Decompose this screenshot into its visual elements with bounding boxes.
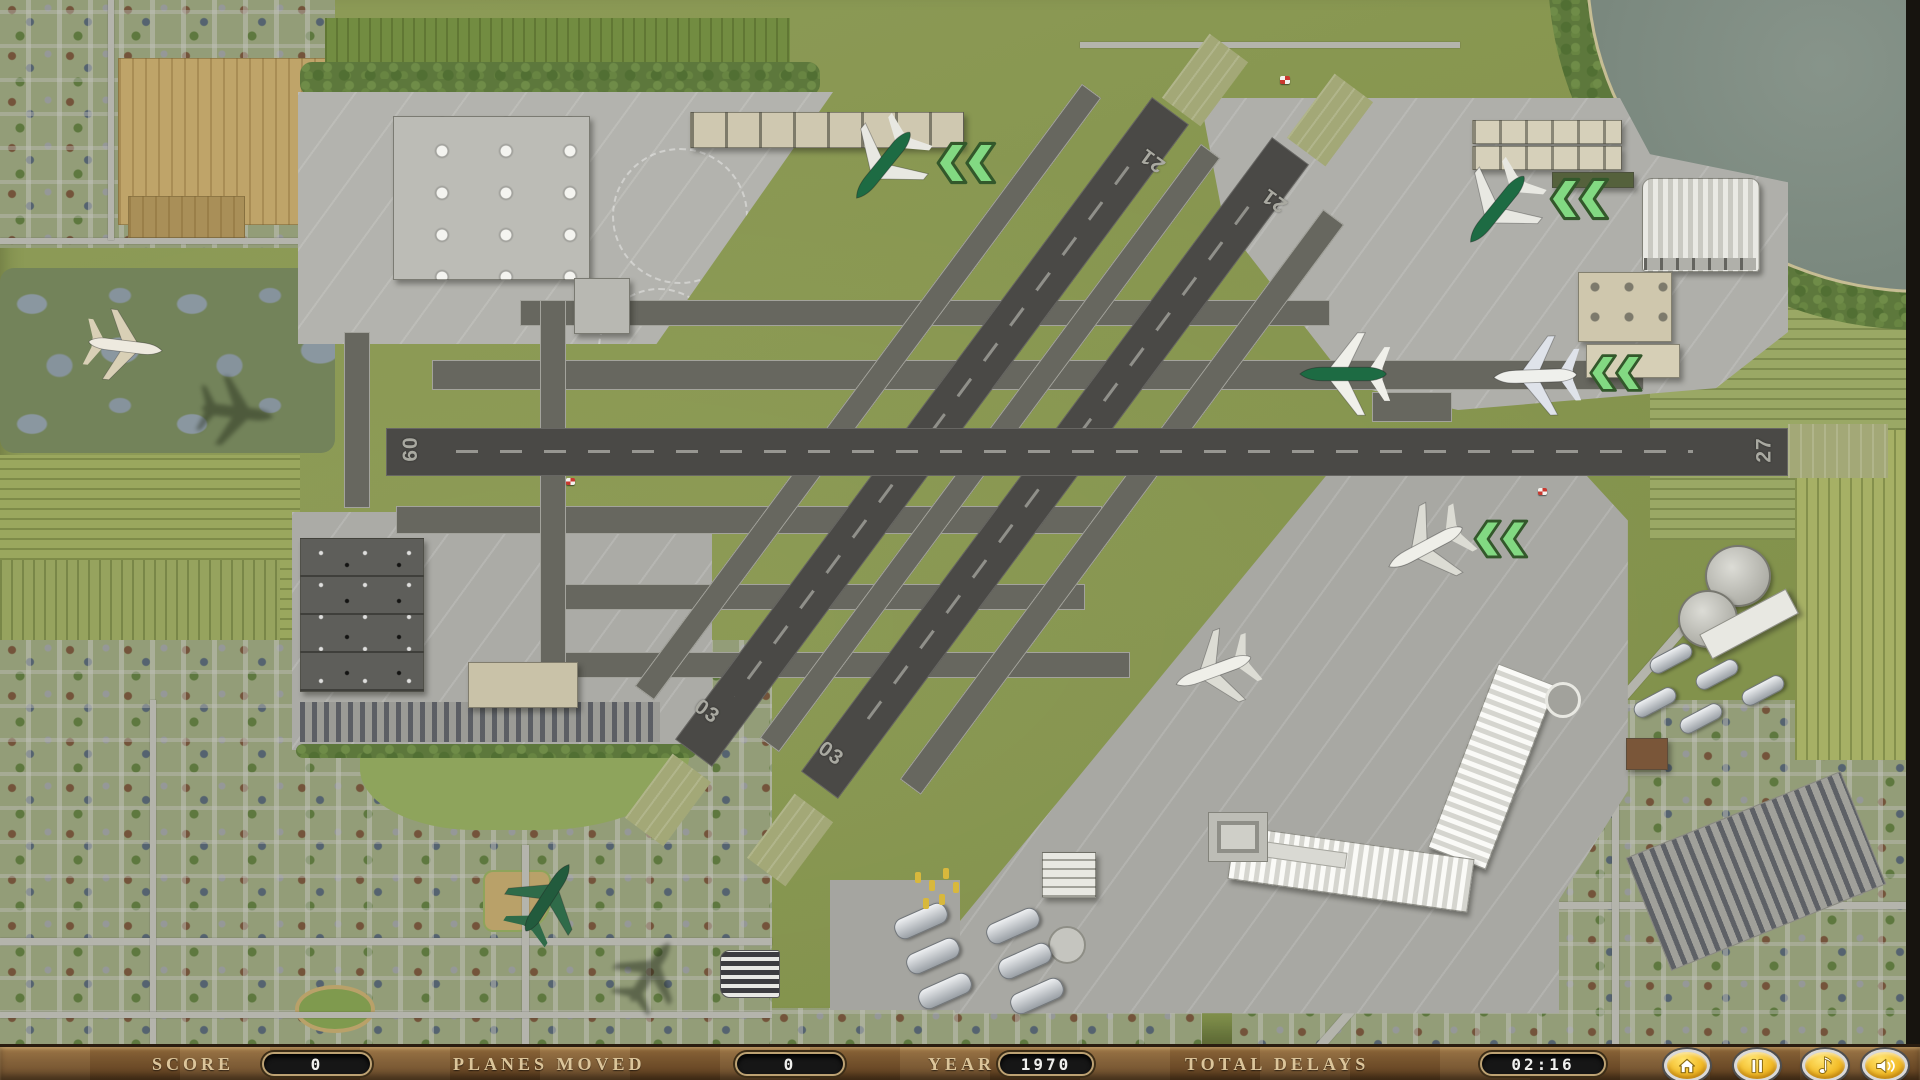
chevron-indicator [1472,518,1540,560]
pause-button[interactable] [1734,1049,1780,1080]
planes-moved-value: 0 [784,1055,797,1074]
house-icon [1672,1055,1702,1077]
runway-centerline [456,450,1693,453]
tree-band-north [300,62,820,96]
runway-number: 09 [397,437,421,462]
year-label: YEAR [928,1054,995,1075]
chevron-indicator [935,140,1009,186]
year-display: 1970 [998,1052,1094,1076]
runway-09-27 [386,428,1788,476]
taxiway-connector [344,332,370,508]
cargo-strip-building [1042,852,1096,898]
barracks-warehouse [1693,656,1742,693]
chevron-indicator [1588,352,1654,394]
airborne-plane-shadow [190,367,279,456]
cargo-warehouse [393,116,590,280]
helipad [1545,682,1581,718]
year-value: 1970 [1021,1055,1072,1074]
music-button[interactable] [1802,1049,1848,1080]
taxiway-connector [540,300,566,680]
parking-circle-marking [612,148,748,284]
hud-bar: SCORE 0 PLANES MOVED 0 YEAR 1970 TOTAL D… [0,1044,1920,1080]
road [150,700,156,1044]
round-pad [1048,926,1086,964]
music-note-icon [1810,1055,1840,1077]
planes-moved-display: 0 [735,1052,845,1076]
fire-truck [1538,488,1547,495]
hangar-doors [1644,258,1756,270]
airport-map: 21 03 21 03 09 27 [0,0,1920,1044]
road [0,238,330,244]
road [1080,42,1460,48]
office-building [468,662,578,708]
road [108,0,114,240]
plane-flying-over-marsh[interactable] [77,300,168,391]
fire-truck [1280,76,1290,84]
speaker-icon [1870,1055,1900,1077]
parking-lot [300,702,660,742]
runway-number: 27 [1753,437,1777,462]
score-value: 0 [311,1055,324,1074]
total-delays-value: 02:16 [1511,1055,1574,1074]
total-delays-label: TOTAL DELAYS [1185,1054,1369,1075]
town-south-mid [772,1008,1202,1044]
planes-moved-label: PLANES MOVED [453,1054,646,1075]
terminal-tower-block [1208,812,1268,862]
stadium-oval [295,985,375,1033]
fuel-barrels [915,872,921,883]
farm-field [128,196,245,238]
tree-row [296,744,696,758]
industrial-warehouse [300,538,424,692]
bus-garage [720,950,780,998]
fire-truck [566,478,575,485]
sound-button[interactable] [1862,1049,1908,1080]
marsh-west [0,268,335,453]
pause-icon [1742,1055,1772,1077]
score-display: 0 [262,1052,372,1076]
blast-pad-east [1788,424,1888,478]
chevron-indicator [1548,176,1622,222]
admin-building [1578,272,1672,342]
score-label: SCORE [152,1054,234,1075]
home-button[interactable] [1664,1049,1710,1080]
brick-building [1626,738,1668,770]
plane-taxiing-center[interactable] [1298,326,1394,422]
game-screen: 21 03 21 03 09 27 [0,0,1920,1080]
plane-east-taxiway[interactable] [1490,328,1585,423]
crop-field-east [1795,430,1920,760]
service-building [574,278,630,334]
total-delays-display: 02:16 [1480,1052,1606,1076]
terminal-northeast [1472,120,1622,144]
screen-edge-strip [1906,0,1920,1044]
